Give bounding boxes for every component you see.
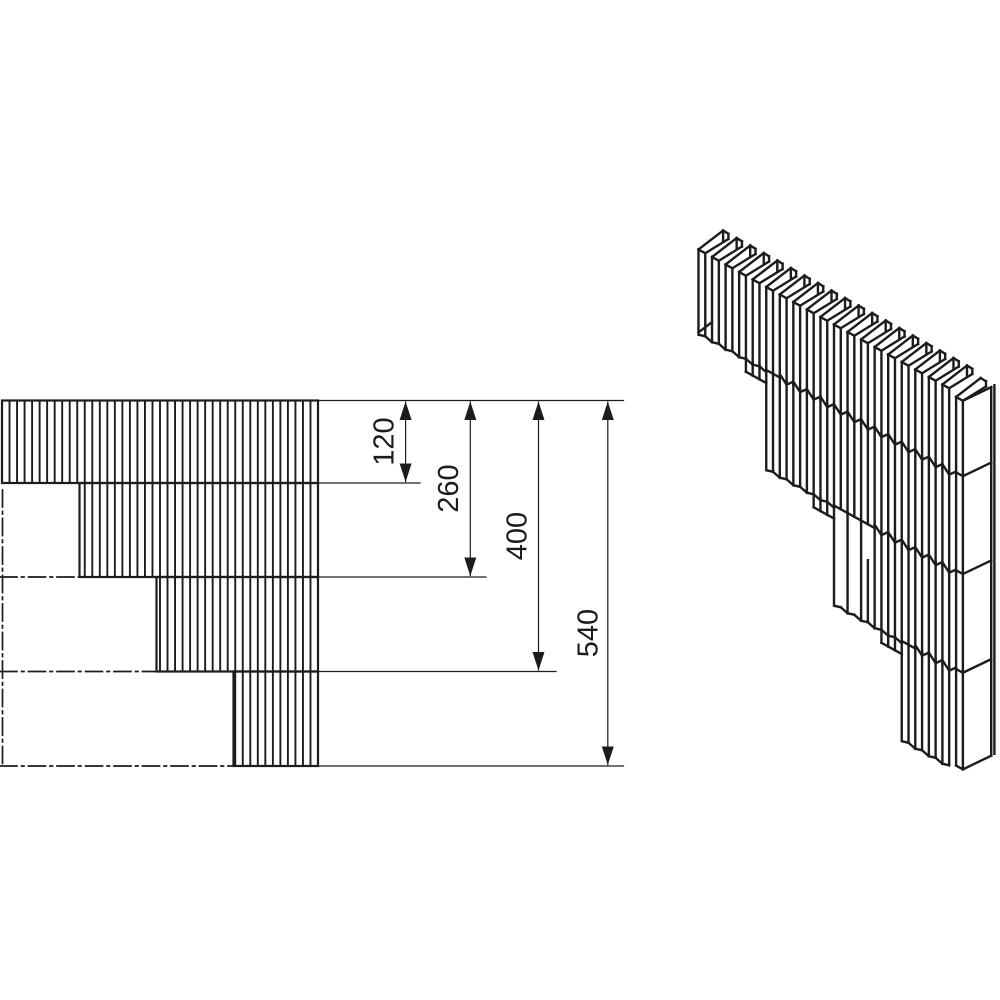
svg-text:120: 120 [369, 417, 401, 465]
svg-text:260: 260 [433, 464, 465, 512]
svg-text:400: 400 [502, 512, 534, 560]
svg-text:540: 540 [572, 609, 604, 657]
